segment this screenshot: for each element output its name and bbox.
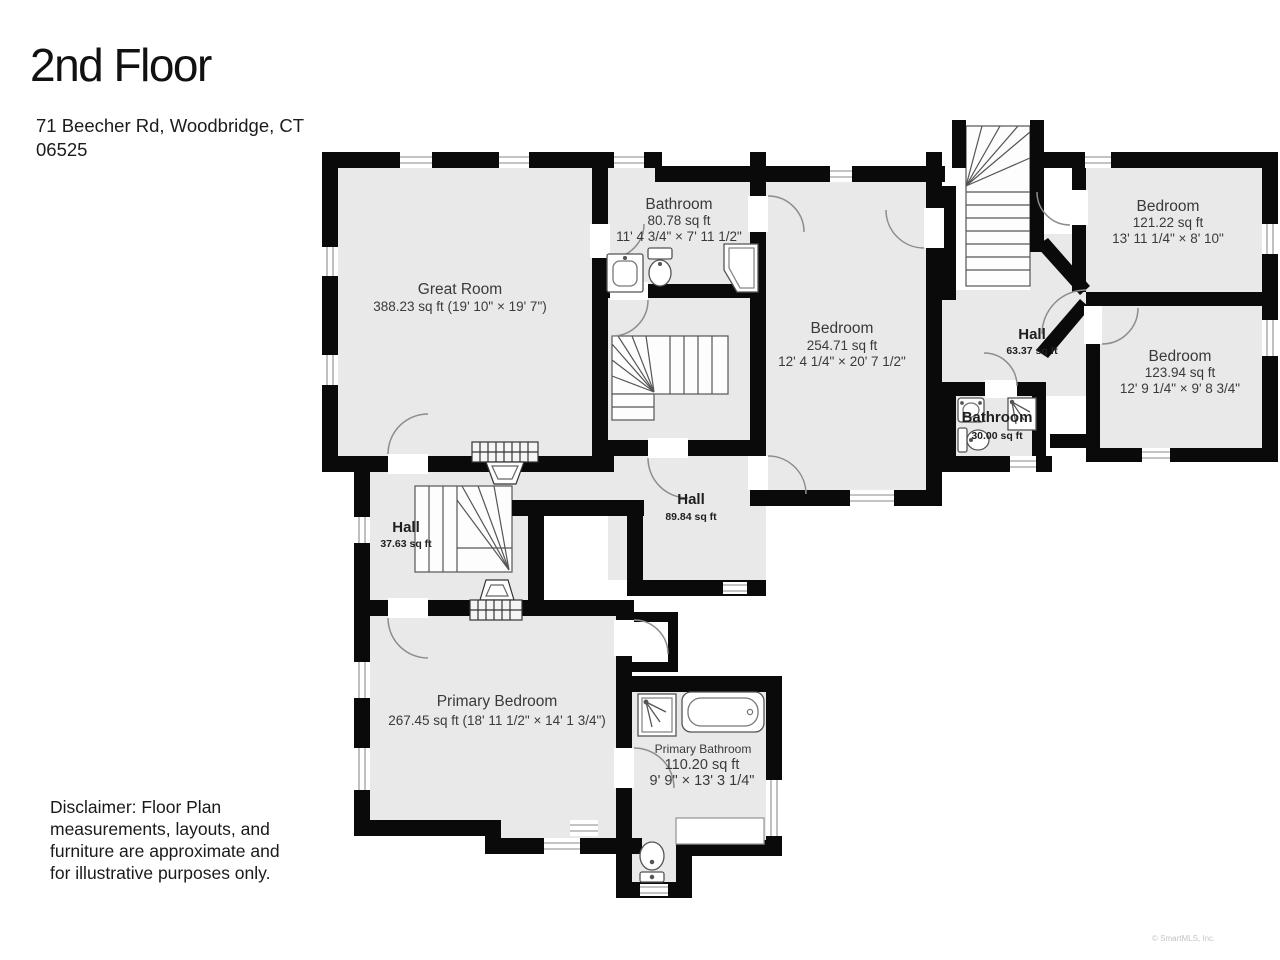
great-room-label: Great Room — [418, 281, 502, 298]
primary-bedroom-label: Primary Bedroom — [437, 693, 558, 710]
disclaimer-line: for illustrative purposes only. — [50, 862, 280, 884]
bathroom-small-area: 30.00 sq ft — [971, 430, 1023, 442]
great-room-details: 388.23 sq ft (19' 10" × 19' 7") — [373, 299, 546, 314]
disclaimer-line: Disclaimer: Floor Plan — [50, 796, 280, 818]
hall-center-area: 89.84 sq ft — [665, 511, 717, 523]
bedroom-right-area: 123.94 sq ft — [1145, 365, 1216, 380]
top-right-staircase — [966, 126, 1030, 286]
bedroom-center-label: Bedroom — [811, 320, 874, 337]
primary-bathroom-dims: 9' 9" × 13' 3 1/4" — [650, 773, 755, 789]
floor-plan-page: 2nd Floor 71 Beecher Rd, Woodbridge, CT … — [0, 0, 1280, 960]
disclaimer-line: measurements, layouts, and — [50, 818, 280, 840]
primary-bathroom-area: 110.20 sq ft — [665, 757, 740, 773]
hall-right-label: Hall — [1018, 326, 1046, 343]
bedroom-top-right-dims: 13' 11 1/4" × 8' 10" — [1112, 231, 1224, 246]
bathtub-icon-primary-bathroom — [682, 692, 764, 732]
left-hall-staircase — [415, 486, 512, 572]
bathroom-top-dims: 11' 4 3/4" × 7' 11 1/2" — [616, 229, 742, 244]
primary-bedroom-details: 267.45 sq ft (18' 11 1/2" × 14' 1 3/4") — [388, 713, 606, 728]
disclaimer-line: furniture are approximate and — [50, 840, 280, 862]
disclaimer: Disclaimer: Floor Plan measurements, lay… — [50, 796, 280, 884]
bedroom-right-label: Bedroom — [1149, 348, 1212, 365]
shower-icon-primary-bathroom — [638, 694, 676, 736]
sink-icon-top-bathroom — [607, 254, 643, 292]
copyright-notice: © SmartMLS, Inc. — [1152, 934, 1215, 943]
corridor-floor — [528, 472, 608, 500]
toilet-icon-top-bathroom — [648, 248, 672, 286]
bedroom-center-dims: 12' 4 1/4" × 20' 7 1/2" — [778, 354, 906, 369]
hall-left-label: Hall — [392, 519, 420, 536]
bedroom-top-right-label: Bedroom — [1137, 198, 1200, 215]
bedroom-right-dims: 12' 9 1/4" × 9' 8 3/4" — [1120, 381, 1240, 396]
primary-bathroom-label: Primary Bathroom — [655, 742, 752, 756]
door-arc-closet — [634, 620, 668, 654]
hall-left-area: 37.63 sq ft — [380, 538, 432, 550]
bedroom-top-right-area: 121.22 sq ft — [1133, 215, 1204, 230]
bedroom-top-right-floor — [1086, 168, 1262, 292]
bedroom-center-area: 254.71 sq ft — [807, 338, 878, 353]
hall-right-area: 63.37 sq ft — [1006, 345, 1058, 357]
bathroom-top-area: 80.78 sq ft — [647, 213, 710, 228]
toilet-icon-primary-bathroom — [640, 842, 664, 882]
bathroom-top-label: Bathroom — [645, 196, 712, 213]
vanity-counter-primary-bathroom — [676, 818, 764, 844]
bathroom-small-label: Bathroom — [962, 409, 1033, 426]
hall-center-label: Hall — [677, 491, 705, 508]
